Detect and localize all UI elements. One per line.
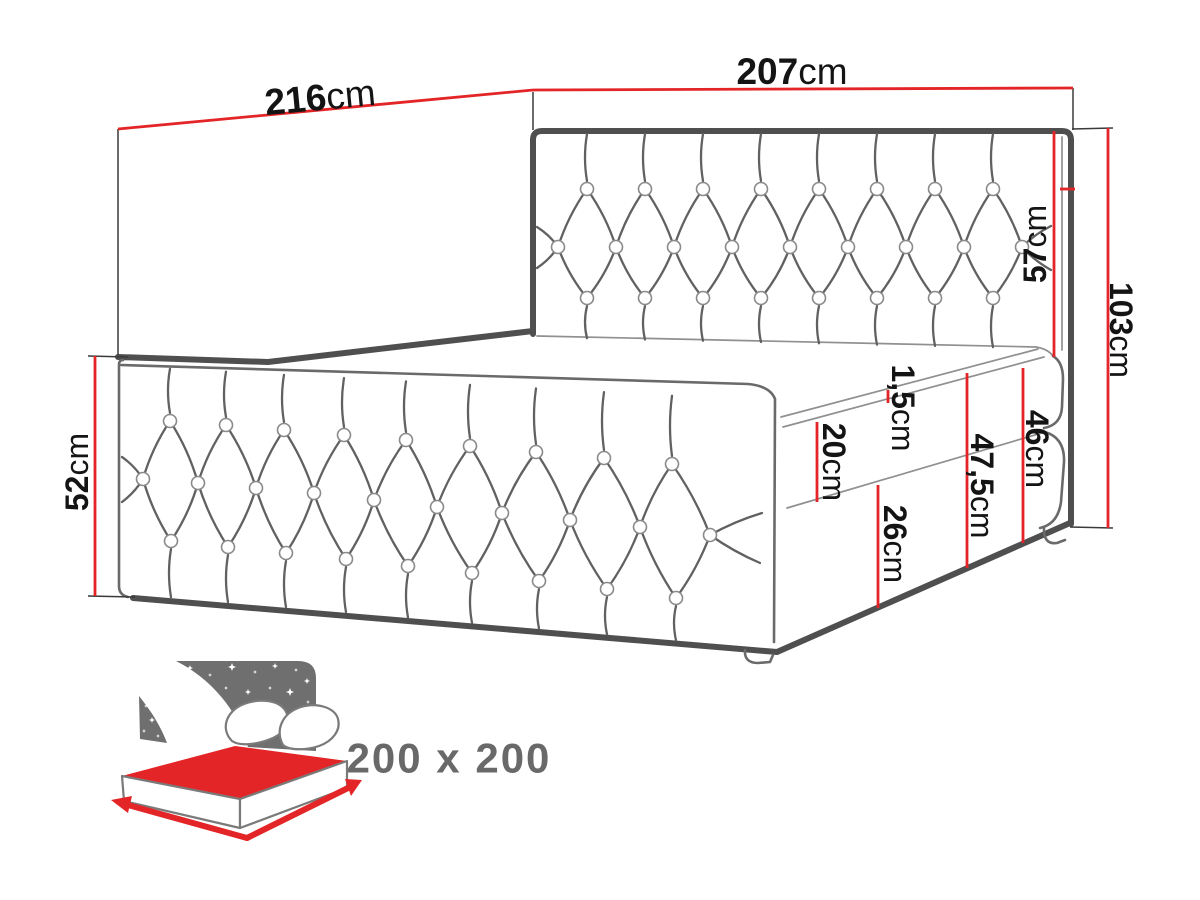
size-label: 200 x 200 bbox=[347, 735, 552, 782]
mattress-top-left-edge bbox=[118, 331, 533, 362]
label-side-panel-height: 52cm bbox=[59, 433, 95, 511]
side-panel-left-edge bbox=[119, 360, 128, 597]
label-entry-height: 47,5cm bbox=[964, 434, 1000, 539]
box-bottom-right-edge bbox=[777, 523, 1070, 652]
label-frame-length: 216cm bbox=[263, 71, 377, 122]
side-panel-bottom-edge bbox=[133, 598, 777, 652]
size-icon: 200 x 200 bbox=[111, 661, 551, 838]
label-total-height: 103cm bbox=[1103, 282, 1139, 378]
icon-arrowhead-left bbox=[111, 796, 132, 813]
diagram-canvas: 216cm 207cm 57cm 103cm 52cm 1,5cm 20cm 4… bbox=[0, 0, 1200, 900]
label-frame-width: 207cm bbox=[736, 51, 847, 92]
label-headboard-height: 57cm bbox=[1017, 205, 1053, 283]
label-mattress: 20cm bbox=[816, 423, 852, 501]
bed-drawing bbox=[118, 131, 1071, 663]
label-box-height: 26cm bbox=[877, 505, 913, 583]
dimension-lines bbox=[88, 88, 1113, 608]
bed-dimension-diagram: 216cm 207cm 57cm 103cm 52cm 1,5cm 20cm 4… bbox=[0, 0, 1200, 900]
label-topper: 1,5cm bbox=[885, 364, 921, 451]
label-mattress-with-box: 46cm bbox=[1019, 410, 1055, 488]
